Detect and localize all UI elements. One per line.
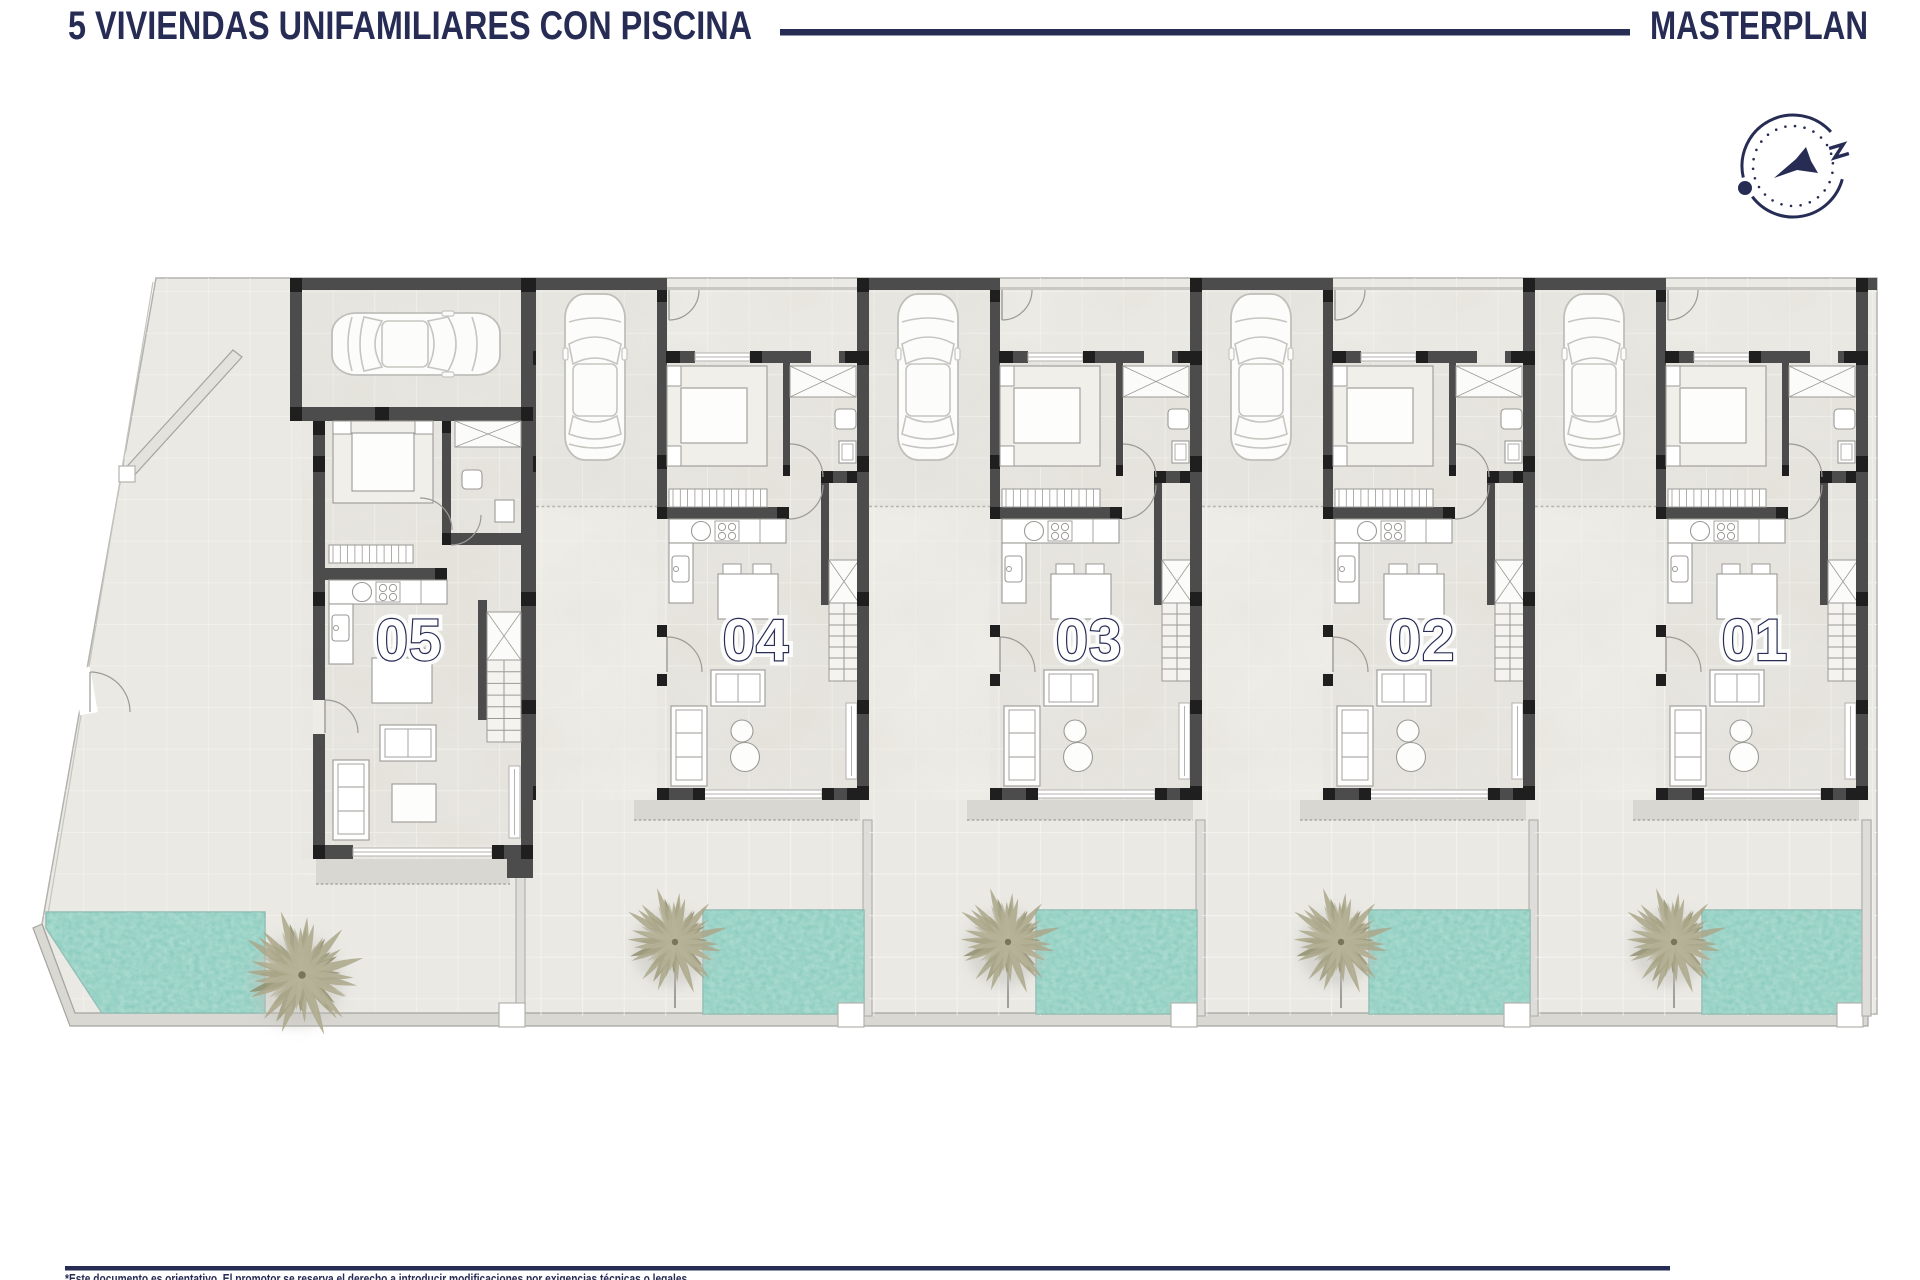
svg-text:5 VIVIENDAS UNIFAMILIARES CON: 5 VIVIENDAS UNIFAMILIARES CON PISCINA	[68, 4, 752, 48]
svg-text:03: 03	[1056, 608, 1123, 673]
svg-text:MASTERPLAN: MASTERPLAN	[1650, 4, 1868, 48]
svg-text:*Este documento es orientativo: *Este documento es orientativo. El promo…	[65, 1271, 690, 1280]
svg-text:01: 01	[1722, 608, 1789, 673]
svg-text:05: 05	[376, 608, 443, 673]
svg-text:02: 02	[1389, 608, 1456, 673]
svg-text:04: 04	[723, 608, 790, 673]
